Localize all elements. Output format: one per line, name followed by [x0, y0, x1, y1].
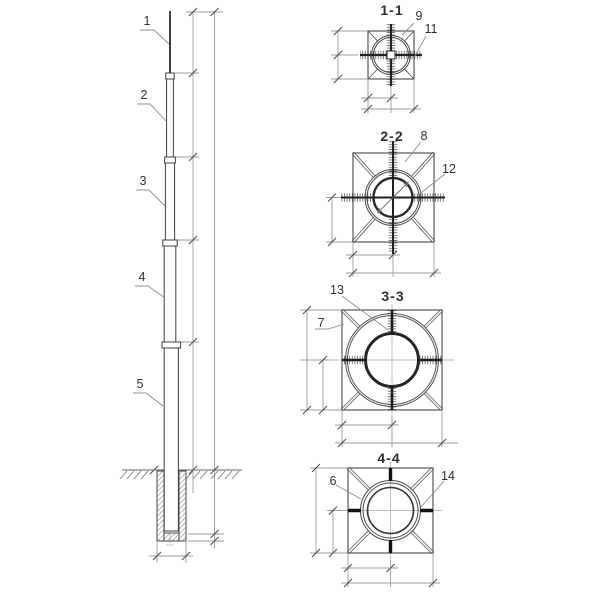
- section-1-1-center-bar: [387, 51, 395, 59]
- section-1-1-title: 1-1: [380, 2, 403, 18]
- mast-segment-5: [164, 348, 178, 531]
- pole-callout-1-label: 1: [144, 14, 151, 28]
- pole-callout-3-label: 3: [140, 174, 147, 188]
- mast-segment-3: [165, 163, 174, 240]
- foundation-wall-right: [179, 471, 186, 541]
- foundation-wall-left: [157, 471, 164, 541]
- foundation-bottom-slab: [164, 533, 179, 541]
- section-3-3-callout-13-label: 13: [330, 283, 344, 297]
- section-4-4-callout-14-label: 14: [441, 469, 455, 483]
- section-3-3-title: 3-3: [381, 288, 404, 304]
- mast-joint-collar-3: [165, 157, 176, 163]
- mast-joint-collar-5: [162, 342, 181, 348]
- section-4-4-title: 4-4: [377, 450, 400, 466]
- section-2-2-callout-12-label: 12: [442, 162, 456, 176]
- section-2-2-callout-8-label: 8: [421, 129, 428, 143]
- section-1-1-callout-9-label: 9: [416, 9, 423, 23]
- mast-segment-4: [164, 246, 176, 342]
- mast-segment-2: [167, 79, 174, 157]
- technical-drawing-canvas: 1 2 3 4 5 1-1 9 11: [0, 0, 600, 600]
- pole-callout-4-label: 4: [139, 270, 146, 284]
- mast-joint-collar-2: [166, 73, 174, 79]
- section-3-3-callout-7-label: 7: [318, 316, 325, 330]
- section-2-2-title: 2-2: [380, 128, 403, 144]
- pole-callout-2-label: 2: [141, 88, 148, 102]
- section-4-4-callout-6-label: 6: [330, 474, 337, 488]
- sheet-background: [0, 0, 600, 600]
- section-1-1-callout-11-label: 11: [425, 22, 438, 36]
- pole-callout-5-label: 5: [137, 377, 144, 391]
- drawing-sheet: 1 2 3 4 5 1-1 9 11: [0, 0, 600, 600]
- mast-joint-collar-4: [163, 240, 177, 246]
